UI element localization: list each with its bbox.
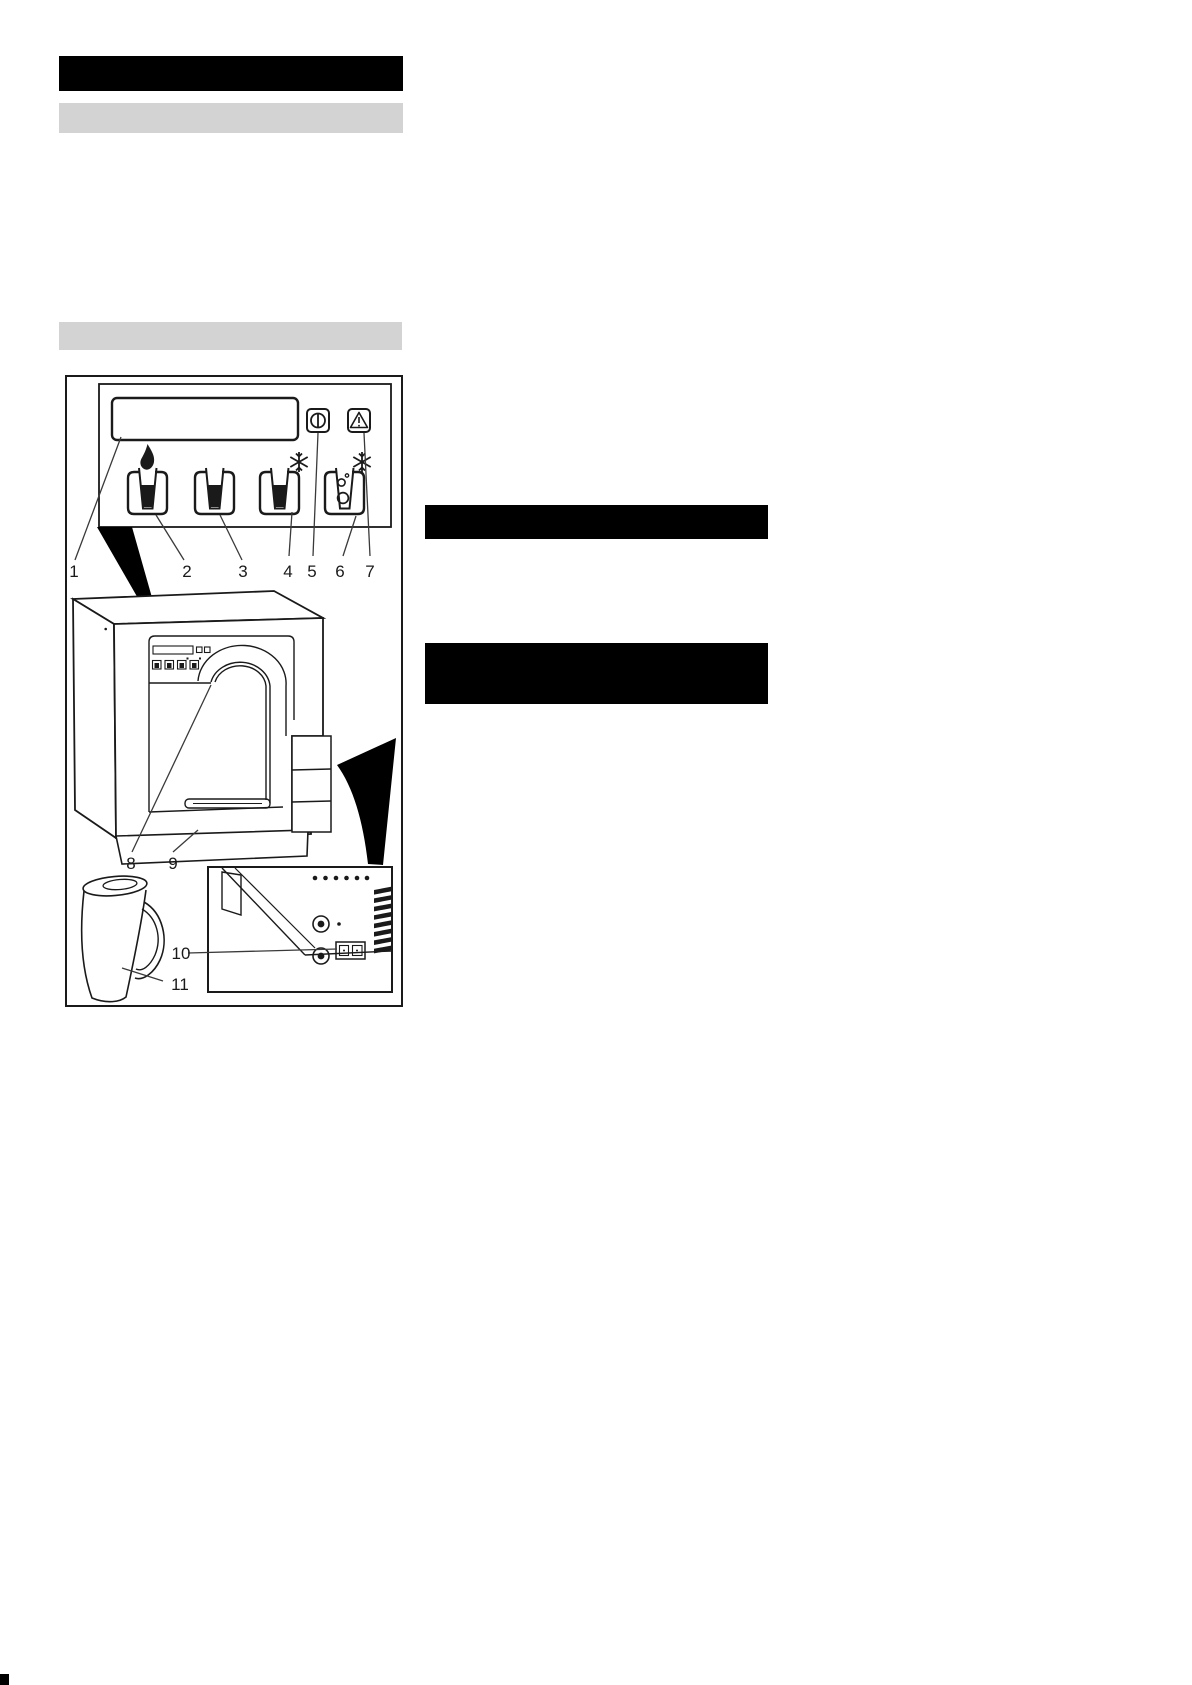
cold-water-button-icon (260, 452, 308, 514)
jug-body (82, 890, 146, 1002)
callout-8: 8 (126, 855, 135, 872)
redacted-section-bar-1 (425, 505, 768, 539)
flame-icon (140, 444, 154, 470)
overview-figure: 1 2 3 4 5 6 7 8 9 10 11 (65, 375, 403, 1007)
bubble-icon (338, 479, 345, 486)
warning-triangle-icon (348, 409, 370, 432)
figure-line-art (65, 375, 403, 1007)
ambient-water-button-icon (195, 468, 234, 514)
scan-artifact-mark (0, 1674, 9, 1685)
callout-6: 6 (335, 563, 344, 580)
power-standby-icon (307, 409, 329, 432)
callout-2: 2 (182, 563, 191, 580)
hot-water-button-icon (128, 444, 167, 514)
heading-placeholder-bar-1 (59, 103, 403, 133)
heading-placeholder-bar-2 (59, 322, 402, 350)
callout-1: 1 (69, 563, 78, 580)
callout-5: 5 (307, 563, 316, 580)
control-panel-detail (99, 384, 391, 527)
display (112, 398, 298, 440)
snowflake-icon (290, 452, 307, 472)
callout-11: 11 (171, 976, 189, 993)
water-jug-drawing (82, 874, 164, 1002)
callout-10: 10 (172, 945, 191, 962)
callout-7: 7 (365, 563, 374, 580)
redacted-section-bar-2 (425, 643, 768, 704)
dispenser-machine-drawing (73, 591, 331, 864)
sparkling-water-button-icon (325, 452, 371, 514)
inset-frame (208, 867, 392, 992)
snowflake-icon (353, 452, 370, 472)
callout-3: 3 (238, 563, 247, 580)
manual-page: 1 2 3 4 5 6 7 8 9 10 11 (0, 0, 1192, 1685)
redacted-title-bar (59, 56, 403, 91)
machine-base (116, 830, 308, 864)
callout-9: 9 (168, 855, 177, 872)
inset-pointer-wedge (337, 738, 396, 865)
machine-left-face (73, 599, 116, 838)
side-compartment (292, 736, 331, 832)
rear-view-inset (188, 867, 392, 992)
callout-4: 4 (283, 563, 292, 580)
